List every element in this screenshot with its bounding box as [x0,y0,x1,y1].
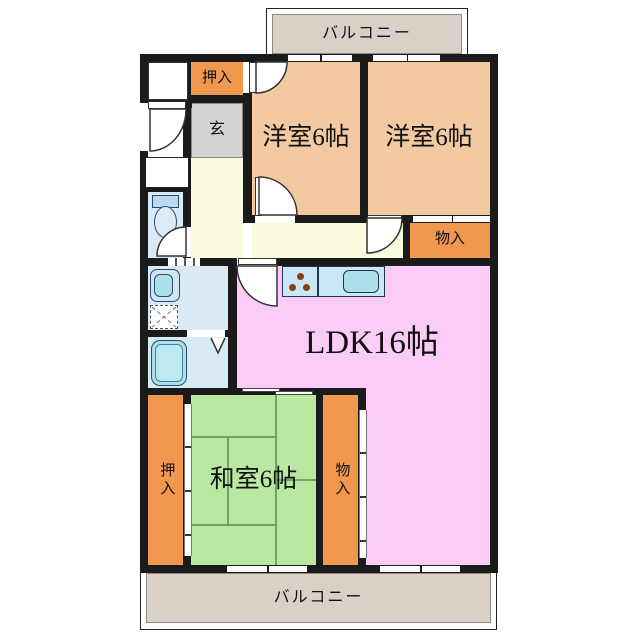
japanese-room-sliding-door [275,391,313,395]
closet-bottom-label: 押入 [158,462,174,498]
closet-bottom: 押入 [148,395,183,565]
closet-top: 押入 [191,62,243,95]
tatami-line [191,436,276,438]
kitchen-sink [343,270,379,293]
storage-top: 物入 [410,222,490,258]
stove-burner [289,284,296,291]
entrance-door-leaf [148,101,186,109]
western-left-door-opening [255,215,295,223]
stove-burner [303,284,310,291]
closet-top-door-leaf [249,62,257,93]
room-japanese-label: 和室6帖 [210,467,298,493]
room-western-left: 洋室6帖 [252,62,360,215]
room-western-left-label: 洋室6帖 [262,125,350,151]
hallway-vertical [191,158,243,258]
window [373,54,440,62]
tatami-line [191,524,276,526]
washbasin-bowl [154,274,173,297]
wall-segment [360,54,368,223]
toilet-door-opening [183,227,191,257]
stove-burner [297,273,304,280]
window [288,54,352,62]
bathtub-inner [155,344,183,382]
entrance-door-arc [150,109,186,151]
closet-top-label: 押入 [202,71,232,87]
closet-bottom-fusuma [184,404,192,556]
floor-plan: バルコニー バルコニー 洋室6帖 洋室6帖 押入 玄 物入 LDK16帖 和室6… [0,0,640,640]
western-right-door-leaf [367,215,402,222]
storage-top-label: 物入 [435,232,465,248]
western-left-door-leaf [255,177,262,216]
washing-machine-space [150,305,178,329]
bathroom-door-opening [187,330,225,337]
wall-segment [316,388,323,573]
toilet-bowl [154,206,177,238]
storage-bottom: 物入 [323,395,358,565]
balcony-bottom: バルコニー [146,573,491,623]
window [227,565,307,573]
room-western-right: 洋室6帖 [368,62,490,215]
ldk-door-leaf [238,258,277,265]
entrance-genkan: 玄 [191,103,243,158]
wall-outer-right [490,54,498,573]
balcony-top-label: バルコニー [322,26,412,43]
entrance-opening [140,103,148,151]
wall-segment [183,95,252,103]
wall-segment [228,258,237,395]
kitchen-counter-divider [317,266,319,297]
porch-alcove [148,62,188,100]
wall-segment [403,215,410,266]
storage-top-sliding-door [413,215,490,223]
storage-bottom-label: 物入 [333,462,349,498]
storage-bottom-sliding-door [359,410,367,558]
room-western-right-label: 洋室6帖 [385,125,473,151]
window [380,565,460,573]
shoe-cabinet [145,157,189,188]
washroom-sliding-door [168,258,200,266]
entrance-label: 玄 [209,122,225,139]
balcony-top: バルコニー [272,14,462,54]
hallway-horizontal [252,223,403,258]
room-ldk-label: LDK16帖 [282,326,462,361]
balcony-bottom-label: バルコニー [274,590,364,607]
